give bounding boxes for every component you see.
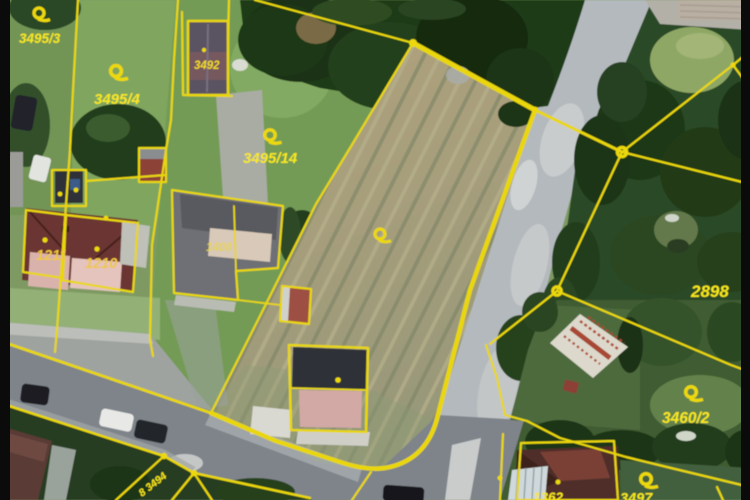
svg-text:3495/3: 3495/3 [19,31,61,46]
svg-text:1362: 1362 [533,490,564,500]
svg-text:3497: 3497 [620,491,653,500]
svg-text:1210: 1210 [85,256,117,272]
svg-text:3492: 3492 [194,60,220,72]
svg-text:3460/2: 3460/2 [662,410,710,427]
svg-text:1408: 1408 [206,242,232,254]
svg-text:2898: 2898 [690,282,729,301]
svg-text:3495/14: 3495/14 [243,150,298,167]
svg-text:1211: 1211 [36,248,67,264]
svg-text:3495/4: 3495/4 [94,91,141,108]
